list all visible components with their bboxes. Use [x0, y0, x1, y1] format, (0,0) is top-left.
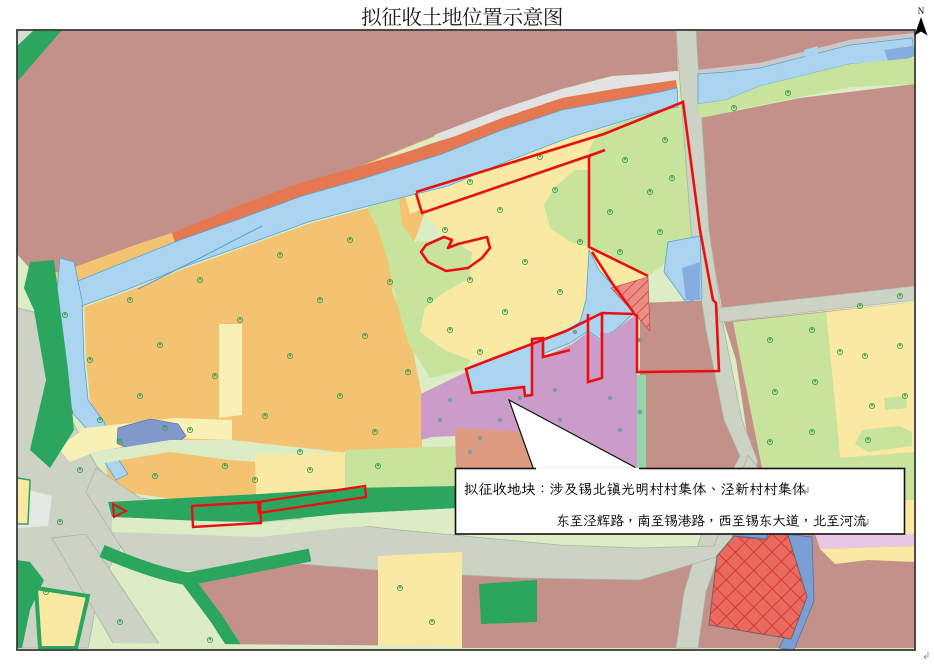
- svg-text:N: N: [918, 6, 925, 16]
